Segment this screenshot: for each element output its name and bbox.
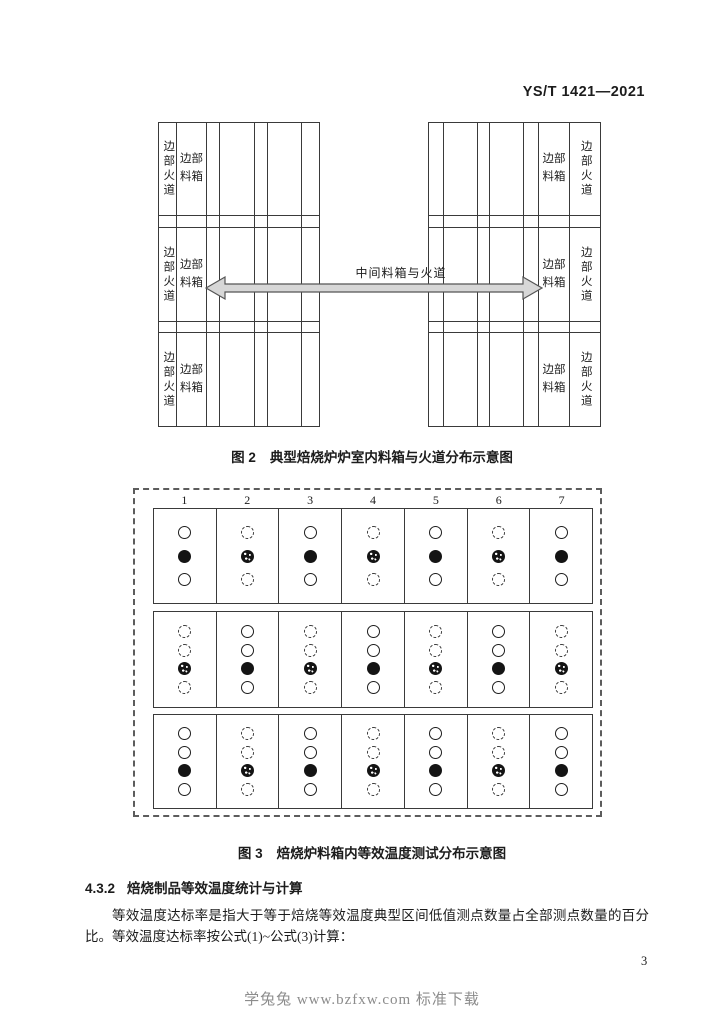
material-box-column-cell: 边部料箱 xyxy=(539,123,570,215)
column-number-5: 5 xyxy=(404,493,467,508)
material-box-cell xyxy=(154,509,217,603)
column-number-6: 6 xyxy=(467,493,530,508)
edge-flue-label: 边部火道 xyxy=(579,246,591,304)
column-number-7: 7 xyxy=(530,493,593,508)
material-box-column-cell xyxy=(220,322,255,332)
flue-column-cell: 边部火道 xyxy=(159,123,177,215)
section-heading: 4.3.2焙烧制品等效温度统计与计算 xyxy=(85,877,303,897)
column-number-1: 1 xyxy=(153,493,216,508)
material-box-cell xyxy=(530,509,592,603)
test-point-open-icon xyxy=(178,526,191,539)
material-box-column-cell xyxy=(539,322,570,332)
furnace-row-section: 边部火道边部料箱 xyxy=(159,333,319,426)
material-box-cell xyxy=(468,715,531,808)
test-point-dashed-icon xyxy=(555,625,568,638)
figure3-diagram: 1 2 3 4 5 6 7 xyxy=(133,488,602,817)
edge-box-label: 边部料箱 xyxy=(541,151,567,187)
figure3-caption: 图 3焙烧炉料箱内等效温度测试分布示意图 xyxy=(10,842,724,862)
figure3-caption-title: 焙烧炉料箱内等效温度测试分布示意图 xyxy=(277,846,507,861)
flue-column-cell xyxy=(524,123,539,215)
test-point-dashed-icon xyxy=(241,573,254,586)
material-box-column-cell xyxy=(268,123,302,215)
test-point-open-icon xyxy=(178,746,191,759)
flue-column-cell xyxy=(429,216,444,227)
test-point-speckled-icon xyxy=(367,764,380,777)
test-point-filled-icon xyxy=(178,550,191,563)
column-number-3: 3 xyxy=(279,493,342,508)
edge-box-label: 边部料箱 xyxy=(541,362,567,398)
material-box-column-cell xyxy=(220,216,255,227)
flue-column-cell xyxy=(429,333,444,426)
test-point-dashed-icon xyxy=(178,644,191,657)
test-point-speckled-icon xyxy=(304,662,317,675)
section-title: 焙烧制品等效温度统计与计算 xyxy=(127,881,303,896)
test-point-dashed-icon xyxy=(241,746,254,759)
test-point-open-icon xyxy=(555,526,568,539)
flue-column-cell xyxy=(570,216,600,227)
test-point-dashed-icon xyxy=(367,573,380,586)
furnace-row-section: 边部火道边部料箱 xyxy=(159,123,319,215)
flue-column-cell xyxy=(207,322,220,332)
test-point-dashed-icon xyxy=(241,526,254,539)
test-point-dashed-icon xyxy=(241,783,254,796)
flue-column-cell: 边部火道 xyxy=(159,228,177,321)
test-point-speckled-icon xyxy=(241,764,254,777)
test-point-speckled-icon xyxy=(241,550,254,563)
column-number-4: 4 xyxy=(342,493,405,508)
flue-column-cell xyxy=(570,322,600,332)
flue-column-cell xyxy=(429,322,444,332)
test-point-speckled-icon xyxy=(555,662,568,675)
test-point-filled-icon xyxy=(555,550,568,563)
material-box-cell xyxy=(405,715,468,808)
test-point-dashed-icon xyxy=(178,681,191,694)
test-point-open-icon xyxy=(178,727,191,740)
test-point-dashed-icon xyxy=(429,644,442,657)
test-point-dashed-icon xyxy=(555,681,568,694)
material-box-column-cell xyxy=(220,123,255,215)
row-divider-strip xyxy=(159,321,319,333)
edge-box-label: 边部料箱 xyxy=(179,151,205,187)
material-box-cell xyxy=(154,612,217,707)
figure3-column-numbers: 1 2 3 4 5 6 7 xyxy=(153,493,593,508)
flue-column-cell xyxy=(255,216,268,227)
flue-column-cell xyxy=(302,322,319,332)
test-point-speckled-icon xyxy=(492,550,505,563)
flue-column-cell xyxy=(255,123,268,215)
material-box-cell xyxy=(217,612,280,707)
material-box-cell xyxy=(279,612,342,707)
figure3-band-bottom xyxy=(153,714,593,809)
test-point-dashed-icon xyxy=(492,526,505,539)
flue-column-cell: 边部火道 xyxy=(570,123,600,215)
test-point-dashed-icon xyxy=(367,746,380,759)
edge-box-label: 边部料箱 xyxy=(179,362,205,398)
test-point-open-icon xyxy=(555,727,568,740)
middle-box-flue-label: 中间料箱与火道 xyxy=(311,264,491,281)
flue-column-cell xyxy=(524,216,539,227)
section-number: 4.3.2 xyxy=(85,881,115,896)
test-point-dashed-icon xyxy=(304,681,317,694)
edge-flue-label: 边部火道 xyxy=(579,140,591,198)
flue-column-cell xyxy=(207,123,220,215)
test-point-open-icon xyxy=(555,573,568,586)
footer-watermark: 学兔兔 www.bzfxw.com 标准下载 xyxy=(0,988,724,1009)
material-box-cell xyxy=(468,509,531,603)
test-point-dashed-icon xyxy=(555,644,568,657)
material-box-cell xyxy=(530,715,592,808)
material-box-column-cell xyxy=(268,216,302,227)
material-box-column-cell xyxy=(268,333,302,426)
test-point-open-icon xyxy=(304,573,317,586)
edge-box-label: 边部料箱 xyxy=(541,257,567,293)
test-point-dashed-icon xyxy=(304,625,317,638)
test-point-dashed-icon xyxy=(429,681,442,694)
test-point-filled-icon xyxy=(241,662,254,675)
test-point-open-icon xyxy=(555,783,568,796)
test-point-open-icon xyxy=(429,526,442,539)
flue-column-cell: 边部火道 xyxy=(570,333,600,426)
flue-column-cell: 边部火道 xyxy=(570,228,600,321)
material-box-cell xyxy=(279,509,342,603)
material-box-cell xyxy=(342,715,405,808)
flue-column-cell: 边部火道 xyxy=(159,333,177,426)
flue-column-cell xyxy=(478,322,490,332)
row-divider-strip xyxy=(429,215,600,228)
flue-column-cell xyxy=(255,322,268,332)
flue-column-cell xyxy=(302,333,319,426)
flue-column-cell xyxy=(302,123,319,215)
test-point-dashed-icon xyxy=(429,625,442,638)
test-point-open-icon xyxy=(241,681,254,694)
material-box-cell xyxy=(342,612,405,707)
test-point-dashed-icon xyxy=(367,783,380,796)
figure2-diagram: 边部火道边部料箱边部火道边部料箱边部火道边部料箱 边部料箱边部火道边部料箱边部火… xyxy=(155,120,605,435)
edge-box-label: 边部料箱 xyxy=(179,257,205,293)
test-point-dashed-icon xyxy=(178,625,191,638)
figure2-caption-title: 典型焙烧炉炉室内料箱与火道分布示意图 xyxy=(270,450,513,465)
test-point-open-icon xyxy=(367,644,380,657)
test-point-open-icon xyxy=(304,746,317,759)
material-box-column-cell xyxy=(490,123,524,215)
test-point-open-icon xyxy=(241,644,254,657)
material-box-column-cell: 边部料箱 xyxy=(539,333,570,426)
test-point-filled-icon xyxy=(429,550,442,563)
flue-column-cell xyxy=(207,216,220,227)
flue-column-cell xyxy=(255,333,268,426)
figure3-caption-number: 图 3 xyxy=(238,846,263,861)
test-point-open-icon xyxy=(304,526,317,539)
material-box-column-cell xyxy=(220,333,255,426)
test-point-filled-icon xyxy=(304,764,317,777)
furnace-row-section: 边部料箱边部火道 xyxy=(429,123,600,215)
material-box-cell xyxy=(217,715,280,808)
test-point-dashed-icon xyxy=(492,783,505,796)
test-point-open-icon xyxy=(429,573,442,586)
material-box-cell xyxy=(342,509,405,603)
test-point-filled-icon xyxy=(178,764,191,777)
edge-flue-label: 边部火道 xyxy=(579,351,591,409)
figure3-band-middle xyxy=(153,611,593,708)
material-box-column-cell xyxy=(177,216,207,227)
flue-column-cell xyxy=(302,216,319,227)
flue-column-cell xyxy=(478,333,490,426)
material-box-column-cell xyxy=(490,216,524,227)
test-point-open-icon xyxy=(555,746,568,759)
flue-column-cell xyxy=(478,123,490,215)
flue-column-cell xyxy=(524,333,539,426)
material-box-column-cell xyxy=(444,123,478,215)
test-point-dashed-icon xyxy=(367,727,380,740)
material-box-column-cell: 边部料箱 xyxy=(539,228,570,321)
material-box-cell xyxy=(530,612,592,707)
test-point-speckled-icon xyxy=(367,550,380,563)
material-box-cell xyxy=(217,509,280,603)
test-point-dashed-icon xyxy=(241,727,254,740)
test-point-open-icon xyxy=(178,783,191,796)
body-paragraph: 等效温度达标率是指大于等于焙烧等效温度典型区间低值测点数量占全部测点数量的百分比… xyxy=(85,905,649,947)
test-point-open-icon xyxy=(304,727,317,740)
test-point-open-icon xyxy=(492,625,505,638)
test-point-open-icon xyxy=(178,573,191,586)
test-point-open-icon xyxy=(429,727,442,740)
row-divider-strip xyxy=(429,321,600,333)
test-point-open-icon xyxy=(241,625,254,638)
material-box-cell xyxy=(154,715,217,808)
material-box-cell xyxy=(405,612,468,707)
edge-flue-label: 边部火道 xyxy=(162,140,174,198)
flue-column-cell xyxy=(207,333,220,426)
test-point-open-icon xyxy=(367,625,380,638)
material-box-column-cell xyxy=(444,333,478,426)
test-point-dashed-icon xyxy=(492,746,505,759)
material-box-column-cell xyxy=(177,322,207,332)
test-point-dashed-icon xyxy=(492,573,505,586)
material-box-column-cell xyxy=(444,216,478,227)
edge-flue-label: 边部火道 xyxy=(162,351,174,409)
document-page: YS/T 1421—2021 边部火道边部料箱边部火道边部料箱边部火道边部料箱 … xyxy=(0,0,724,1024)
test-point-speckled-icon xyxy=(429,662,442,675)
page-number: 3 xyxy=(641,954,647,969)
material-box-column-cell xyxy=(268,322,302,332)
furnace-row-section: 边部料箱边部火道 xyxy=(429,333,600,426)
material-box-column-cell: 边部料箱 xyxy=(177,123,207,215)
column-number-2: 2 xyxy=(216,493,279,508)
row-divider-strip xyxy=(159,215,319,228)
test-point-dashed-icon xyxy=(304,644,317,657)
test-point-filled-icon xyxy=(367,662,380,675)
material-box-cell xyxy=(468,612,531,707)
test-point-speckled-icon xyxy=(178,662,191,675)
standard-number-header: YS/T 1421—2021 xyxy=(523,84,645,100)
test-point-speckled-icon xyxy=(492,764,505,777)
test-point-filled-icon xyxy=(304,550,317,563)
flue-column-cell xyxy=(429,123,444,215)
figure2-caption: 图 2典型焙烧炉炉室内料箱与火道分布示意图 xyxy=(10,446,724,466)
test-point-filled-icon xyxy=(555,764,568,777)
material-box-column-cell xyxy=(444,322,478,332)
flue-column-cell xyxy=(159,216,177,227)
material-box-column-cell xyxy=(490,322,524,332)
material-box-column-cell: 边部料箱 xyxy=(177,333,207,426)
test-point-dashed-icon xyxy=(492,727,505,740)
material-box-column-cell xyxy=(539,216,570,227)
material-box-column-cell xyxy=(490,333,524,426)
test-point-open-icon xyxy=(429,746,442,759)
test-point-filled-icon xyxy=(429,764,442,777)
test-point-filled-icon xyxy=(492,662,505,675)
material-box-cell xyxy=(279,715,342,808)
material-box-cell xyxy=(405,509,468,603)
test-point-dashed-icon xyxy=(367,526,380,539)
flue-column-cell xyxy=(159,322,177,332)
test-point-open-icon xyxy=(492,644,505,657)
figure3-band-top xyxy=(153,508,593,604)
test-point-open-icon xyxy=(492,681,505,694)
figure2-caption-number: 图 2 xyxy=(231,450,256,465)
test-point-open-icon xyxy=(367,681,380,694)
edge-flue-label: 边部火道 xyxy=(162,246,174,304)
flue-column-cell xyxy=(478,216,490,227)
flue-column-cell xyxy=(524,322,539,332)
test-point-open-icon xyxy=(304,783,317,796)
test-point-open-icon xyxy=(429,783,442,796)
material-box-column-cell: 边部料箱 xyxy=(177,228,207,321)
